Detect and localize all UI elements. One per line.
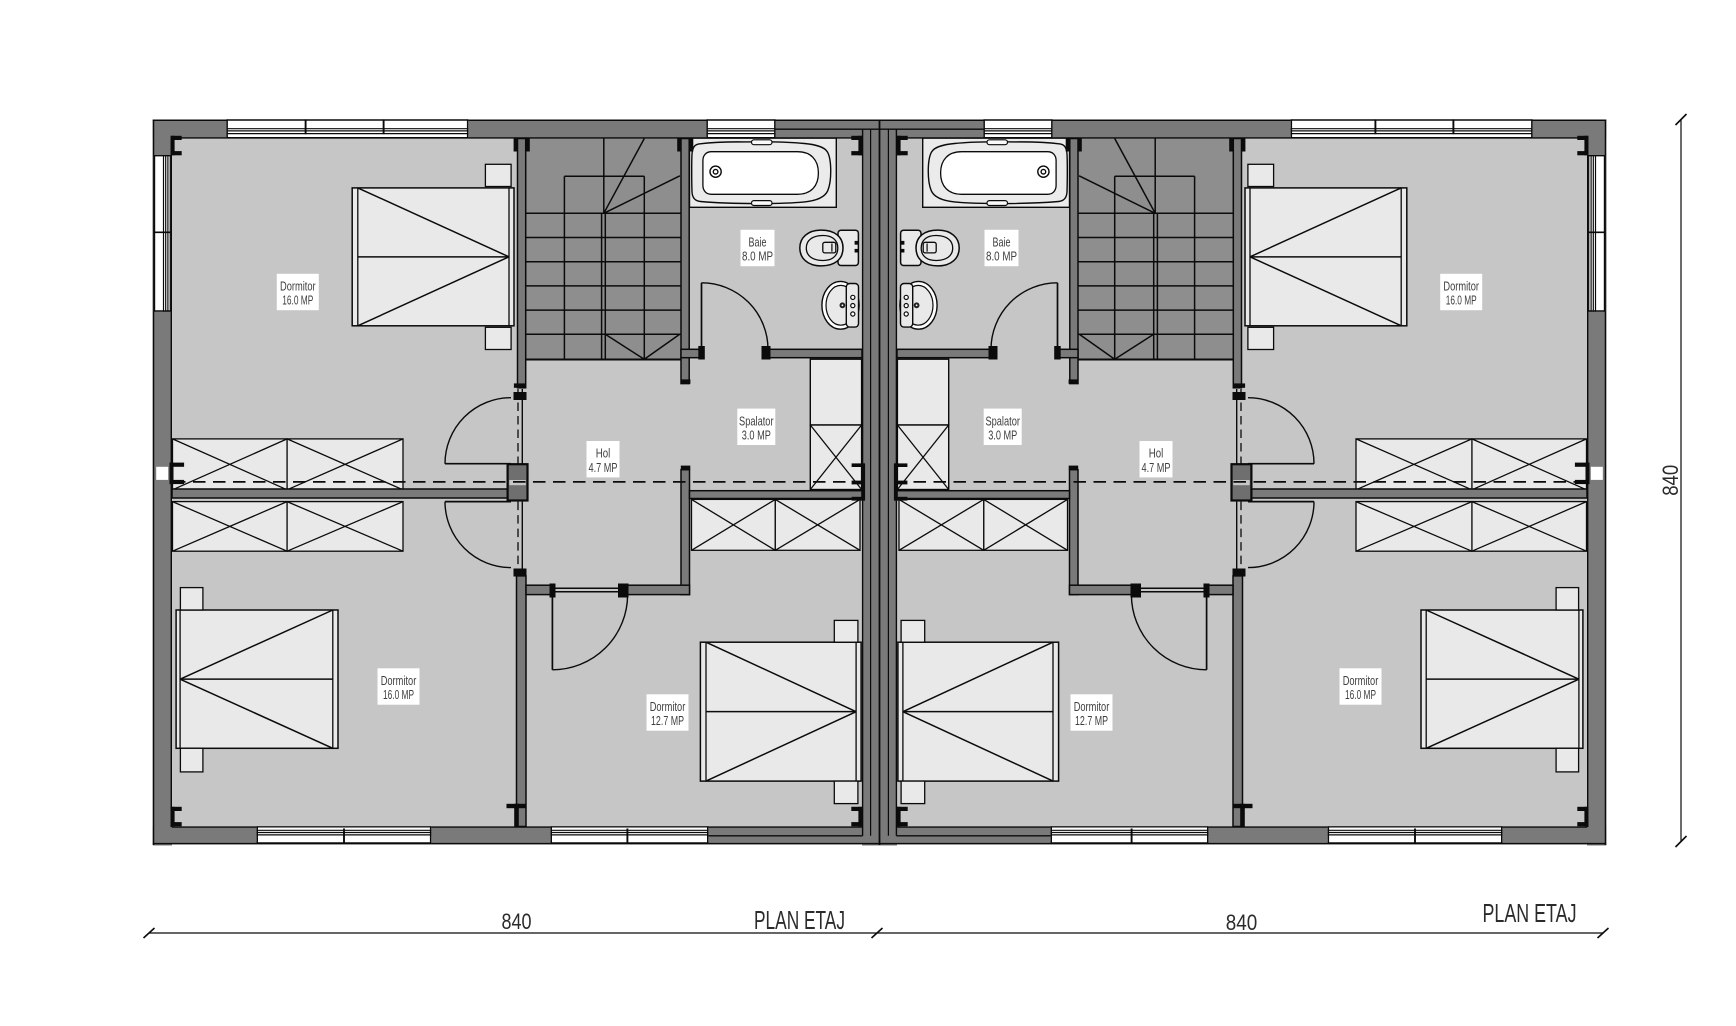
svg-text:4.7 MP: 4.7 MP [1142, 460, 1171, 475]
svg-text:840: 840 [1226, 910, 1258, 935]
svg-text:Hol: Hol [1149, 446, 1164, 461]
svg-text:Baie: Baie [993, 235, 1011, 250]
svg-text:840: 840 [1658, 465, 1683, 496]
svg-text:PLAN ETAJ: PLAN ETAJ [754, 905, 845, 935]
svg-text:Dormitor: Dormitor [280, 279, 316, 294]
svg-text:8.0 MP: 8.0 MP [986, 249, 1017, 264]
svg-text:Dormitor: Dormitor [381, 673, 417, 688]
svg-text:Hol: Hol [596, 446, 611, 461]
svg-text:Spalator: Spalator [985, 413, 1020, 428]
svg-text:16.0 MP: 16.0 MP [1446, 293, 1477, 308]
svg-text:16.0 MP: 16.0 MP [383, 687, 414, 702]
svg-text:Baie: Baie [749, 235, 767, 250]
svg-text:PLAN ETAJ: PLAN ETAJ [1483, 898, 1577, 928]
svg-text:Dormitor: Dormitor [1074, 699, 1110, 714]
svg-text:3.0 MP: 3.0 MP [988, 428, 1017, 443]
svg-text:16.0 MP: 16.0 MP [282, 293, 313, 308]
svg-text:Spalator: Spalator [739, 413, 774, 428]
svg-text:Dormitor: Dormitor [650, 699, 686, 714]
svg-text:12.7 MP: 12.7 MP [1075, 713, 1108, 728]
svg-text:3.0 MP: 3.0 MP [742, 428, 771, 443]
svg-text:4.7 MP: 4.7 MP [589, 460, 618, 475]
svg-text:840: 840 [502, 909, 532, 934]
svg-text:8.0 MP: 8.0 MP [742, 249, 773, 264]
svg-text:Dormitor: Dormitor [1443, 279, 1479, 294]
svg-text:Dormitor: Dormitor [1343, 673, 1379, 688]
svg-text:12.7 MP: 12.7 MP [651, 713, 684, 728]
svg-text:16.0 MP: 16.0 MP [1345, 687, 1376, 702]
